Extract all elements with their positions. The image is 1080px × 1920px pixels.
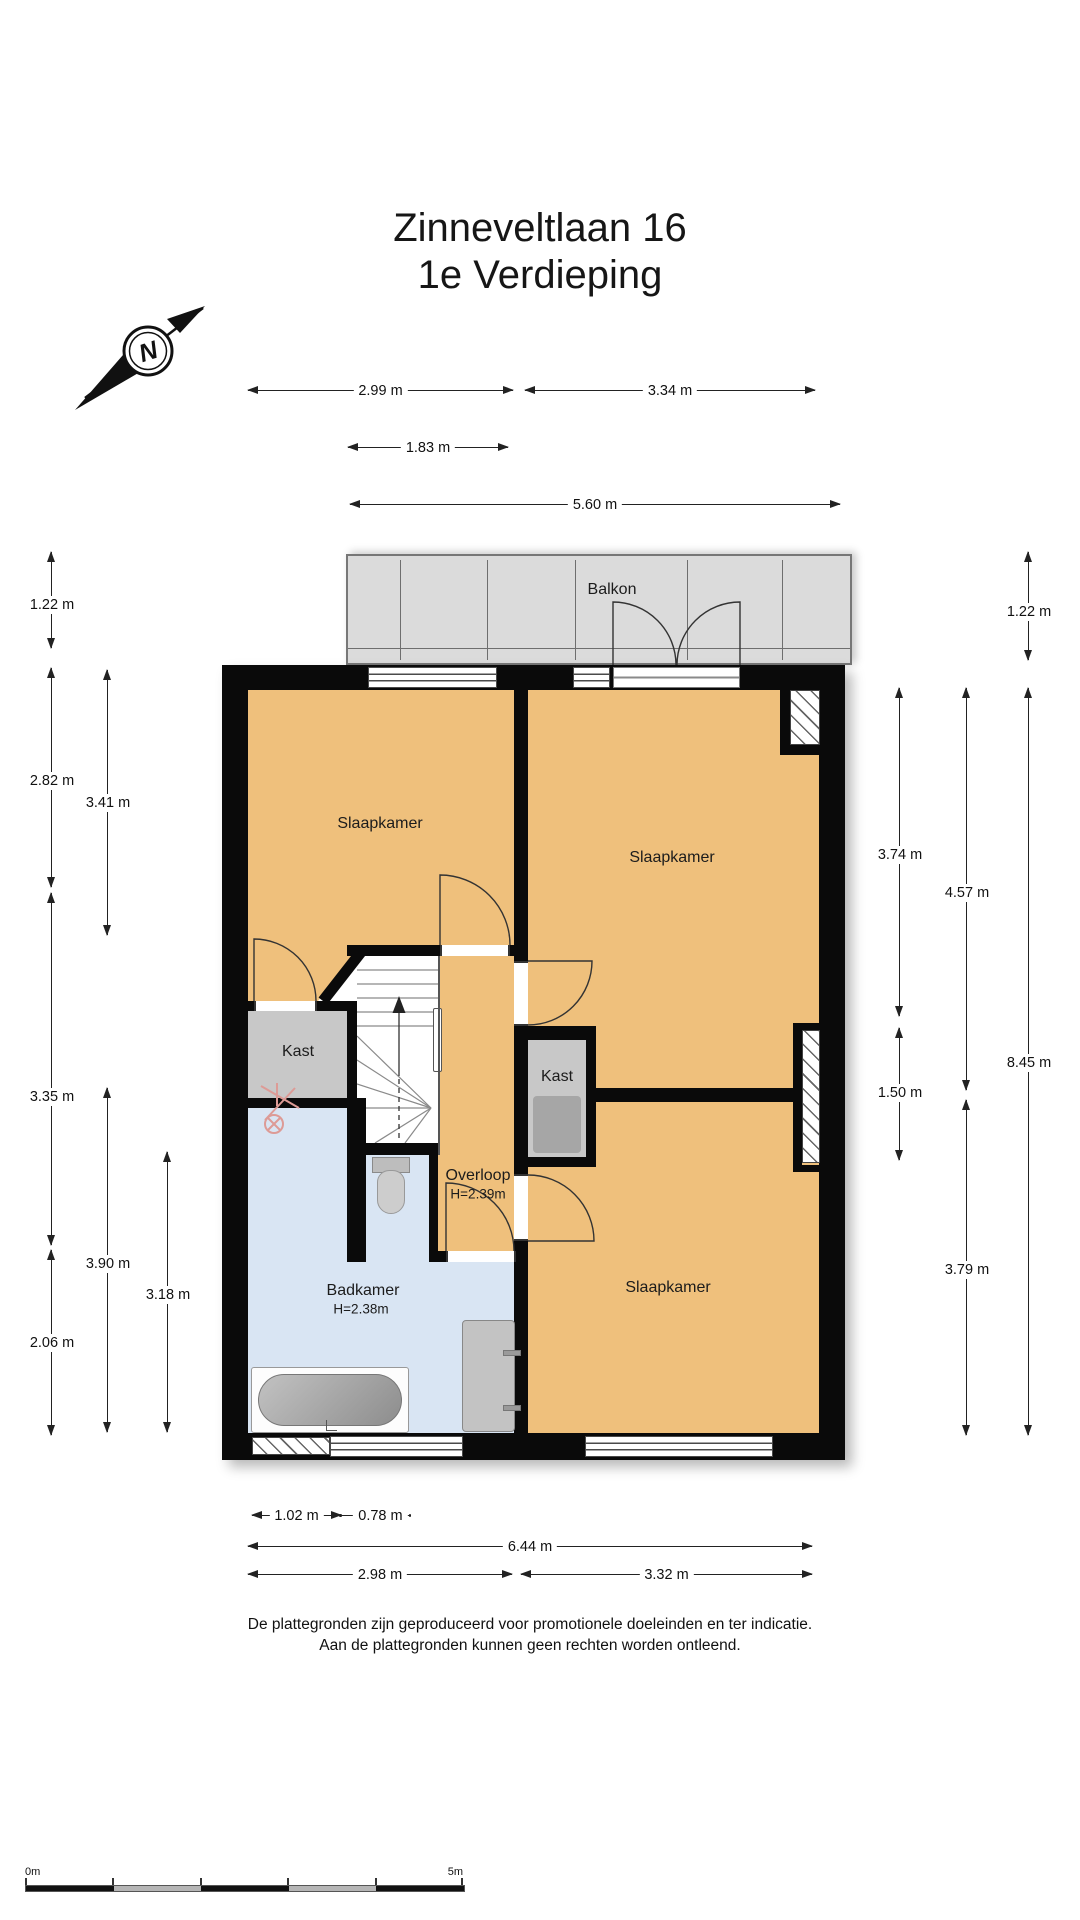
dim-bottom-078: 0.78 m — [341, 1515, 409, 1516]
dim-right-379: 3.79 m — [966, 1100, 967, 1435]
disclaimer-line1: De plattegronden zijn geproduceerd voor … — [160, 1614, 900, 1635]
room-height-overloop: H=2.39m — [450, 1187, 505, 1202]
dim-top-183: 1.83 m — [348, 447, 508, 448]
dim-right-457: 4.57 m — [966, 688, 967, 1090]
disclaimer: De plattegronden zijn geproduceerd voor … — [160, 1614, 900, 1656]
room-label-kast-rechts: Kast — [541, 1068, 573, 1086]
dim-bottom-298: 2.98 m — [248, 1574, 512, 1575]
room-label-kast-links: Kast — [282, 1043, 314, 1061]
room-label-badkamer: Badkamer — [327, 1282, 400, 1300]
dim-left-335: 3.35 m — [51, 893, 52, 1245]
dim-right-122: 1.22 m — [1028, 552, 1029, 660]
dim-top-560: 5.60 m — [350, 504, 840, 505]
dim-right-845: 8.45 m — [1028, 688, 1029, 1435]
scale-end-label: 5m — [448, 1866, 463, 1878]
scale-start-label: 0m — [25, 1866, 40, 1878]
dim-bottom-332: 3.32 m — [521, 1574, 812, 1575]
dim-left-122: 1.22 m — [51, 552, 52, 648]
dim-left-206: 2.06 m — [51, 1250, 52, 1435]
disclaimer-line2: Aan de plattegronden kunnen geen rechten… — [160, 1635, 900, 1656]
dim-top-334: 3.34 m — [525, 390, 815, 391]
dim-left-390: 3.90 m — [107, 1088, 108, 1432]
room-height-badkamer: H=2.38m — [333, 1302, 388, 1317]
room-label-slaapkamer-rechtsonder: Slaapkamer — [625, 1279, 710, 1297]
floorplan-page: Zinneveltlaan 16 1e Verdieping N — [0, 0, 1080, 1920]
dim-left-341: 3.41 m — [107, 670, 108, 935]
dim-bottom-102: 1.02 m — [252, 1515, 341, 1516]
dim-bottom-644: 6.44 m — [248, 1546, 812, 1547]
scale-bar-segments — [25, 1885, 465, 1892]
dim-right-374: 3.74 m — [899, 688, 900, 1016]
room-label-slaapkamer-links: Slaapkamer — [337, 815, 422, 833]
room-label-slaapkamer-rechtsboven: Slaapkamer — [629, 849, 714, 867]
scale-bar: 0m 5m — [25, 1866, 463, 1892]
dim-left-282: 2.82 m — [51, 668, 52, 887]
dim-left-318: 3.18 m — [167, 1152, 168, 1432]
room-label-overloop: Overloop — [446, 1167, 511, 1185]
dim-right-150: 1.50 m — [899, 1028, 900, 1160]
balcony-label: Balkon — [588, 581, 637, 599]
dim-top-299: 2.99 m — [248, 390, 513, 391]
